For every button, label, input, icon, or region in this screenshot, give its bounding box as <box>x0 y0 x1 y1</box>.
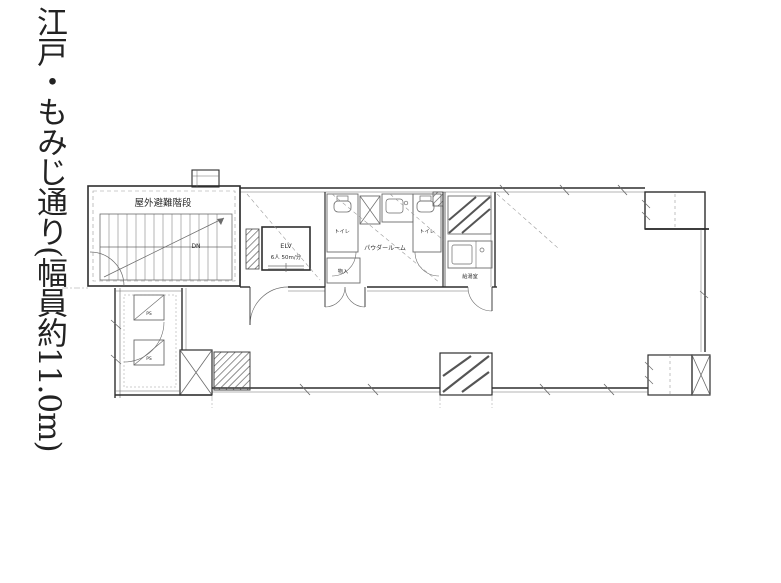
elevator-hall: ELV 6人 50m/分 <box>246 227 310 325</box>
toilet-left-label: トイレ <box>334 229 350 235</box>
powder-room-label: パウダールーム <box>364 244 406 252</box>
evacuation-stair-block: 屋外避難階段 DN <box>88 170 240 286</box>
elevator: ELV 6人 50m/分 <box>262 227 310 272</box>
toilet-right-label: トイレ <box>419 229 435 235</box>
kitchenette-label: 給湯室 <box>462 272 478 280</box>
evacuation-stairs-label: 屋外避難階段 <box>134 197 192 209</box>
office-perimeter <box>62 192 710 408</box>
pipe-shaft-lower-label: PS <box>146 356 152 362</box>
service-block: PS PS <box>111 288 212 398</box>
pipe-shaft-upper-label: PS <box>146 311 152 317</box>
elevator-label: ELV <box>280 242 292 250</box>
floor-plan: 屋外避難階段 DN ELV 6人 50m/分 トイレ <box>0 0 781 583</box>
entry-double-door <box>325 287 365 307</box>
elevator-spec-label: 6人 50m/分 <box>271 253 302 261</box>
closet-label: 物入 <box>338 267 348 275</box>
outer-walls <box>240 185 645 291</box>
down-label: DN <box>191 243 200 250</box>
restroom-block: トイレ トイレ パウダールーム 物入 <box>325 194 441 307</box>
kitchenette-block: 給湯室 <box>448 196 492 311</box>
